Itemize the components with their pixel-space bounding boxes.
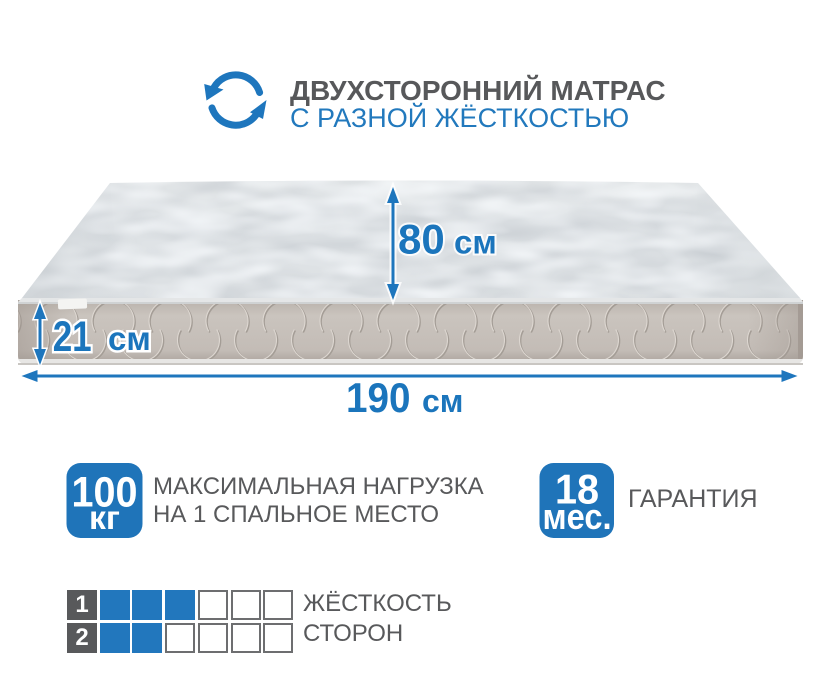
svg-text:см: см: [454, 224, 497, 261]
svg-text:кг: кг: [89, 499, 120, 536]
svg-text:80: 80: [398, 216, 445, 263]
svg-text:мес.: мес.: [543, 496, 612, 537]
svg-text:21: 21: [53, 313, 92, 361]
svg-text:см: см: [108, 320, 151, 357]
svg-text:см: см: [422, 383, 463, 419]
svg-text:190: 190: [346, 374, 411, 420]
